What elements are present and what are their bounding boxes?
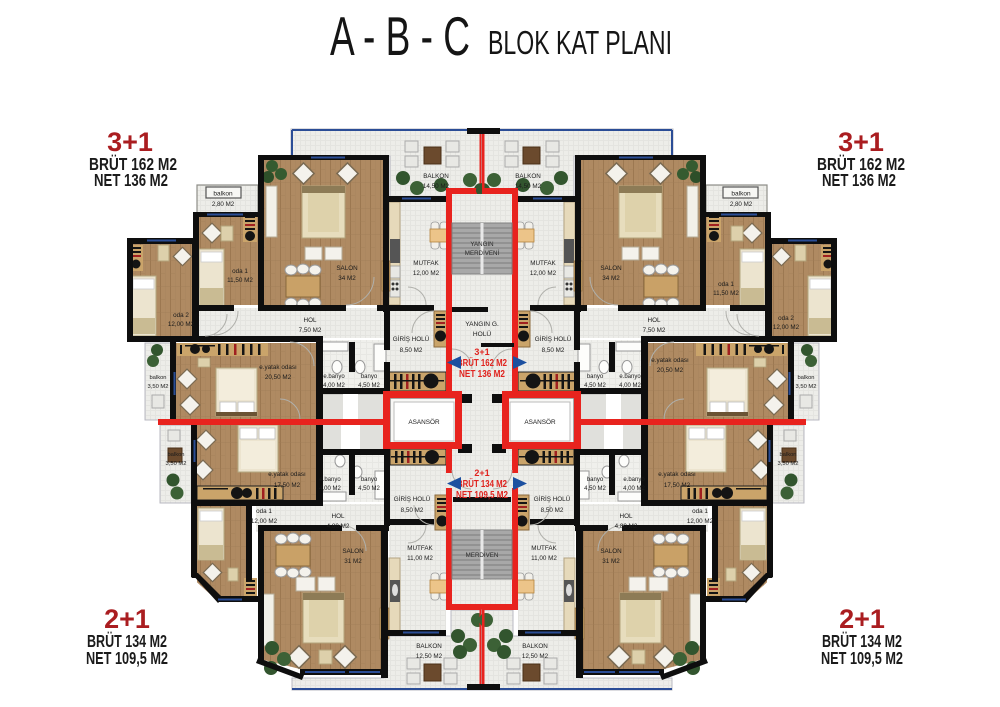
svg-text:banyo: banyo bbox=[587, 477, 604, 483]
svg-text:YANGIN: YANGIN bbox=[470, 241, 493, 248]
svg-text:balkon: balkon bbox=[731, 191, 751, 198]
svg-text:12,00 M2: 12,00 M2 bbox=[773, 324, 800, 331]
svg-text:3,50 M2: 3,50 M2 bbox=[778, 461, 799, 467]
svg-text:4,50 M2: 4,50 M2 bbox=[358, 383, 380, 389]
svg-text:12,00 M2: 12,00 M2 bbox=[251, 518, 278, 525]
svg-text:balkon: balkon bbox=[213, 191, 233, 198]
svg-text:2,80 M2: 2,80 M2 bbox=[730, 201, 753, 208]
svg-text:GİRİŞ HOLÜ: GİRİŞ HOLÜ bbox=[393, 334, 430, 343]
svg-text:20,50 M2: 20,50 M2 bbox=[265, 374, 292, 381]
svg-text:SALON: SALON bbox=[336, 265, 358, 272]
svg-text:11,50 M2: 11,50 M2 bbox=[227, 277, 253, 284]
svg-text:banyo: banyo bbox=[587, 374, 604, 380]
svg-text:7,50 M2: 7,50 M2 bbox=[299, 327, 322, 334]
svg-text:11,00 M2: 11,00 M2 bbox=[407, 555, 433, 562]
svg-text:BRÜT 162 M2: BRÜT 162 M2 bbox=[457, 356, 507, 369]
svg-text:34 M2: 34 M2 bbox=[338, 275, 356, 282]
svg-text:8,50 M2: 8,50 M2 bbox=[400, 347, 423, 354]
svg-text:oda 1: oda 1 bbox=[692, 508, 708, 515]
svg-text:12,50 M2: 12,50 M2 bbox=[522, 653, 549, 660]
svg-text:4,50 M2: 4,50 M2 bbox=[358, 486, 380, 492]
svg-text:MERDİVENİ: MERDİVENİ bbox=[465, 250, 500, 257]
svg-text:e.banyo: e.banyo bbox=[323, 374, 345, 380]
svg-text:2+1: 2+1 bbox=[104, 604, 150, 634]
svg-text:8,50 M2: 8,50 M2 bbox=[541, 507, 564, 514]
svg-text:MUTFAK: MUTFAK bbox=[530, 260, 556, 267]
svg-text:BALKON: BALKON bbox=[515, 173, 541, 180]
svg-text:4,00 M2: 4,00 M2 bbox=[323, 383, 345, 389]
svg-text:4,80 M2: 4,80 M2 bbox=[327, 523, 350, 530]
svg-text:4,00 M2: 4,00 M2 bbox=[619, 383, 641, 389]
svg-text:11,50 M2: 11,50 M2 bbox=[713, 290, 739, 297]
svg-text:20,50 M2: 20,50 M2 bbox=[657, 367, 684, 374]
svg-text:3+1: 3+1 bbox=[838, 127, 884, 157]
svg-text:4,50 M2: 4,50 M2 bbox=[584, 383, 606, 389]
svg-text:17,50 M2: 17,50 M2 bbox=[274, 482, 301, 489]
svg-text:3,50 M2: 3,50 M2 bbox=[166, 461, 187, 467]
svg-text:BRÜT 134 M2: BRÜT 134 M2 bbox=[457, 477, 507, 490]
svg-text:banyo: banyo bbox=[361, 477, 378, 483]
svg-text:balkon: balkon bbox=[167, 452, 184, 458]
svg-text:HOL: HOL bbox=[620, 513, 633, 520]
svg-text:HOL: HOL bbox=[304, 317, 317, 324]
svg-text:ASANSÖR: ASANSÖR bbox=[524, 418, 556, 426]
svg-text:e.yatak odası: e.yatak odası bbox=[268, 471, 306, 478]
svg-text:e.yatak odası: e.yatak odası bbox=[651, 357, 689, 364]
svg-text:4,80 M2: 4,80 M2 bbox=[615, 523, 638, 530]
svg-text:balkon: balkon bbox=[779, 452, 796, 458]
svg-text:14,50 M2: 14,50 M2 bbox=[423, 183, 450, 190]
svg-text:oda 2: oda 2 bbox=[173, 312, 189, 319]
svg-text:31 M2: 31 M2 bbox=[344, 558, 362, 565]
svg-text:BALKON: BALKON bbox=[423, 173, 449, 180]
svg-text:MUTFAK: MUTFAK bbox=[407, 545, 433, 552]
svg-text:7,50 M2: 7,50 M2 bbox=[643, 327, 666, 334]
svg-text:GİRİŞ HOLÜ: GİRİŞ HOLÜ bbox=[394, 494, 431, 503]
svg-text:8,50 M2: 8,50 M2 bbox=[542, 347, 565, 354]
svg-text:NET 109,5 M2: NET 109,5 M2 bbox=[456, 490, 508, 501]
svg-text:NET 109,5 M2: NET 109,5 M2 bbox=[821, 648, 903, 668]
svg-text:17,50 M2: 17,50 M2 bbox=[664, 482, 691, 489]
svg-text:4,50 M2: 4,50 M2 bbox=[584, 486, 606, 492]
svg-text:balkon: balkon bbox=[149, 375, 166, 381]
svg-text:12,00 M2: 12,00 M2 bbox=[687, 518, 714, 525]
svg-text:GİRİŞ HOLÜ: GİRİŞ HOLÜ bbox=[535, 334, 572, 343]
svg-text:12,00 M2: 12,00 M2 bbox=[530, 270, 557, 277]
svg-text:NET 136 M2: NET 136 M2 bbox=[94, 170, 168, 190]
svg-text:HOL: HOL bbox=[332, 513, 345, 520]
svg-text:8,50 M2: 8,50 M2 bbox=[401, 507, 424, 514]
svg-text:e.yatak odası: e.yatak odası bbox=[259, 364, 297, 371]
svg-text:MUTFAK: MUTFAK bbox=[413, 260, 439, 267]
svg-text:2+1: 2+1 bbox=[839, 604, 885, 634]
svg-text:SALON: SALON bbox=[600, 265, 622, 272]
svg-text:oda 1: oda 1 bbox=[256, 508, 272, 515]
svg-text:A - B - C: A - B - C bbox=[330, 5, 470, 67]
svg-text:GİRİŞ HOLÜ: GİRİŞ HOLÜ bbox=[534, 494, 571, 503]
svg-text:4,00 M2: 4,00 M2 bbox=[623, 486, 645, 492]
svg-text:12,00 M2: 12,00 M2 bbox=[413, 270, 440, 277]
svg-text:3+1: 3+1 bbox=[474, 347, 489, 357]
svg-text:12,00 M2: 12,00 M2 bbox=[168, 321, 195, 328]
svg-text:NET 109,5 M2: NET 109,5 M2 bbox=[86, 648, 168, 668]
svg-text:3,50 M2: 3,50 M2 bbox=[148, 384, 169, 390]
svg-text:3+1: 3+1 bbox=[107, 127, 153, 157]
svg-text:oda 1: oda 1 bbox=[232, 268, 248, 275]
svg-text:3,50 M2: 3,50 M2 bbox=[796, 384, 817, 390]
svg-text:e.banyo: e.banyo bbox=[619, 374, 641, 380]
svg-text:banyo: banyo bbox=[361, 374, 378, 380]
svg-text:balkon: balkon bbox=[797, 375, 814, 381]
svg-text:e.banyo: e.banyo bbox=[319, 477, 341, 483]
svg-text:SALON: SALON bbox=[600, 548, 622, 555]
svg-text:31 M2: 31 M2 bbox=[602, 558, 620, 565]
svg-text:MUTFAK: MUTFAK bbox=[531, 545, 557, 552]
svg-text:2,80 M2: 2,80 M2 bbox=[212, 201, 235, 208]
svg-text:BALKON: BALKON bbox=[522, 643, 548, 650]
svg-text:e.banyo: e.banyo bbox=[623, 477, 645, 483]
svg-text:SALON: SALON bbox=[342, 548, 364, 555]
svg-text:34 M2: 34 M2 bbox=[602, 275, 620, 282]
svg-text:BLOK KAT PLANI: BLOK KAT PLANI bbox=[488, 24, 672, 61]
svg-text:2+1: 2+1 bbox=[474, 468, 489, 478]
svg-text:11,00 M2: 11,00 M2 bbox=[531, 555, 557, 562]
svg-text:NET 136 M2: NET 136 M2 bbox=[459, 369, 505, 380]
svg-text:BALKON: BALKON bbox=[416, 643, 442, 650]
svg-text:HOL: HOL bbox=[648, 317, 661, 324]
svg-text:YANGIN G.: YANGIN G. bbox=[465, 321, 499, 328]
svg-text:MERDİVEN: MERDİVEN bbox=[466, 552, 499, 559]
svg-text:ASANSÖR: ASANSÖR bbox=[408, 418, 440, 426]
svg-text:e.yatak odası: e.yatak odası bbox=[658, 471, 696, 478]
svg-text:14,50 M2: 14,50 M2 bbox=[515, 183, 542, 190]
svg-text:HOLÜ: HOLÜ bbox=[473, 330, 492, 338]
svg-text:oda 2: oda 2 bbox=[778, 315, 794, 322]
svg-text:oda 1: oda 1 bbox=[718, 281, 734, 288]
svg-text:4,00 M2: 4,00 M2 bbox=[319, 486, 341, 492]
svg-text:NET 136 M2: NET 136 M2 bbox=[822, 170, 896, 190]
svg-text:12,50 M2: 12,50 M2 bbox=[416, 653, 443, 660]
